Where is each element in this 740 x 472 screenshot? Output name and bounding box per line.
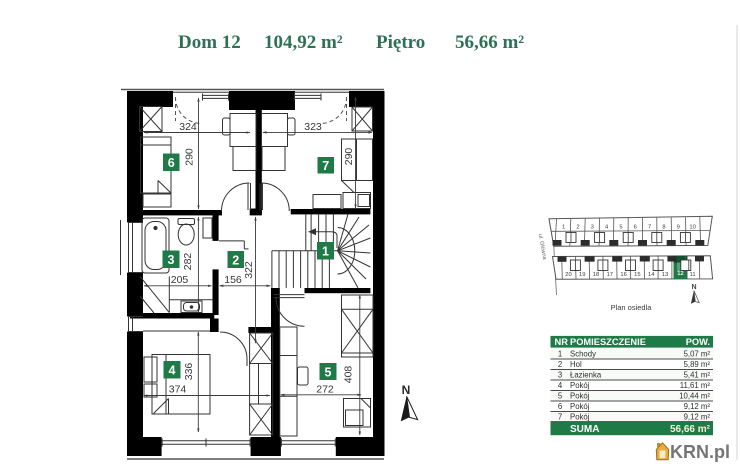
svg-text:SUMA: SUMA bbox=[570, 424, 599, 435]
svg-text:272: 272 bbox=[316, 383, 334, 395]
svg-text:5: 5 bbox=[558, 392, 563, 401]
svg-text:9: 9 bbox=[677, 225, 680, 231]
svg-text:1: 1 bbox=[558, 350, 562, 359]
svg-text:336: 336 bbox=[183, 363, 195, 381]
svg-text:Hol: Hol bbox=[570, 360, 582, 369]
svg-text:4: 4 bbox=[558, 381, 563, 390]
svg-text:18: 18 bbox=[593, 272, 599, 278]
svg-text:POMIESZCZENIE: POMIESZCZENIE bbox=[570, 337, 646, 347]
svg-text:11: 11 bbox=[690, 272, 696, 278]
svg-text:5: 5 bbox=[619, 225, 622, 231]
svg-text:Pokój: Pokój bbox=[570, 392, 590, 401]
svg-text:20: 20 bbox=[565, 272, 571, 278]
svg-text:8: 8 bbox=[662, 225, 665, 231]
svg-text:290: 290 bbox=[343, 148, 355, 166]
svg-text:Dom 12: Dom 12 bbox=[178, 32, 241, 53]
svg-text:7: 7 bbox=[648, 225, 651, 231]
svg-text:16: 16 bbox=[620, 272, 626, 278]
svg-text:7: 7 bbox=[558, 412, 562, 421]
svg-text:9,12 m²: 9,12 m² bbox=[684, 412, 711, 421]
svg-text:Pokój: Pokój bbox=[570, 402, 590, 411]
svg-text:11,61 m²: 11,61 m² bbox=[680, 381, 711, 390]
svg-text:290: 290 bbox=[184, 148, 196, 166]
svg-text:Łazienka: Łazienka bbox=[570, 371, 602, 380]
svg-text:N: N bbox=[691, 284, 696, 291]
svg-text:5: 5 bbox=[325, 365, 332, 379]
svg-text:5,89 m²: 5,89 m² bbox=[684, 360, 711, 369]
svg-text:14: 14 bbox=[648, 272, 655, 278]
svg-text:3: 3 bbox=[168, 253, 175, 267]
svg-text:156: 156 bbox=[224, 274, 242, 286]
svg-text:4: 4 bbox=[169, 364, 176, 378]
svg-text:7: 7 bbox=[322, 159, 329, 173]
svg-text:3: 3 bbox=[558, 371, 562, 380]
svg-text:Piętro: Piętro bbox=[376, 32, 425, 53]
svg-text:56,66 m²: 56,66 m² bbox=[455, 32, 524, 53]
svg-text:2: 2 bbox=[232, 253, 239, 267]
svg-text:5,41 m²: 5,41 m² bbox=[684, 371, 711, 380]
svg-text:Schody: Schody bbox=[570, 350, 596, 359]
svg-text:2: 2 bbox=[558, 360, 562, 369]
svg-text:POW.: POW. bbox=[686, 337, 710, 347]
svg-text:6: 6 bbox=[168, 156, 175, 170]
svg-text:282: 282 bbox=[182, 253, 194, 271]
svg-text:9,12 m²: 9,12 m² bbox=[684, 402, 711, 411]
svg-text:N: N bbox=[402, 383, 411, 397]
svg-text:5,07 m²: 5,07 m² bbox=[684, 350, 711, 359]
svg-text:13: 13 bbox=[662, 272, 668, 278]
svg-text:10,44 m²: 10,44 m² bbox=[679, 392, 710, 401]
svg-text:Pokój: Pokój bbox=[570, 381, 590, 390]
svg-text:Plan osiedla: Plan osiedla bbox=[611, 303, 653, 312]
svg-text:19: 19 bbox=[579, 272, 585, 278]
svg-text:2: 2 bbox=[576, 225, 579, 231]
svg-text:15: 15 bbox=[634, 272, 640, 278]
svg-text:12: 12 bbox=[677, 271, 683, 277]
svg-text:KRN.pl: KRN.pl bbox=[670, 442, 730, 462]
svg-text:324: 324 bbox=[179, 121, 197, 133]
svg-text:6: 6 bbox=[558, 402, 562, 411]
svg-text:Pokój: Pokój bbox=[570, 412, 590, 421]
svg-text:374: 374 bbox=[169, 384, 187, 396]
svg-text:1: 1 bbox=[562, 225, 565, 231]
svg-text:205: 205 bbox=[171, 274, 189, 286]
svg-text:1: 1 bbox=[322, 245, 329, 259]
svg-text:408: 408 bbox=[343, 366, 355, 384]
svg-text:3: 3 bbox=[591, 225, 594, 231]
svg-text:NR: NR bbox=[555, 337, 569, 347]
svg-text:10: 10 bbox=[689, 224, 695, 230]
svg-text:ul. Główna: ul. Główna bbox=[537, 234, 548, 262]
svg-text:56,66 m²: 56,66 m² bbox=[670, 424, 711, 435]
svg-text:323: 323 bbox=[304, 121, 322, 133]
svg-text:322: 322 bbox=[243, 261, 255, 279]
svg-text:17: 17 bbox=[607, 272, 613, 278]
svg-text:6: 6 bbox=[634, 225, 637, 231]
svg-text:104,92 m²: 104,92 m² bbox=[264, 32, 343, 53]
